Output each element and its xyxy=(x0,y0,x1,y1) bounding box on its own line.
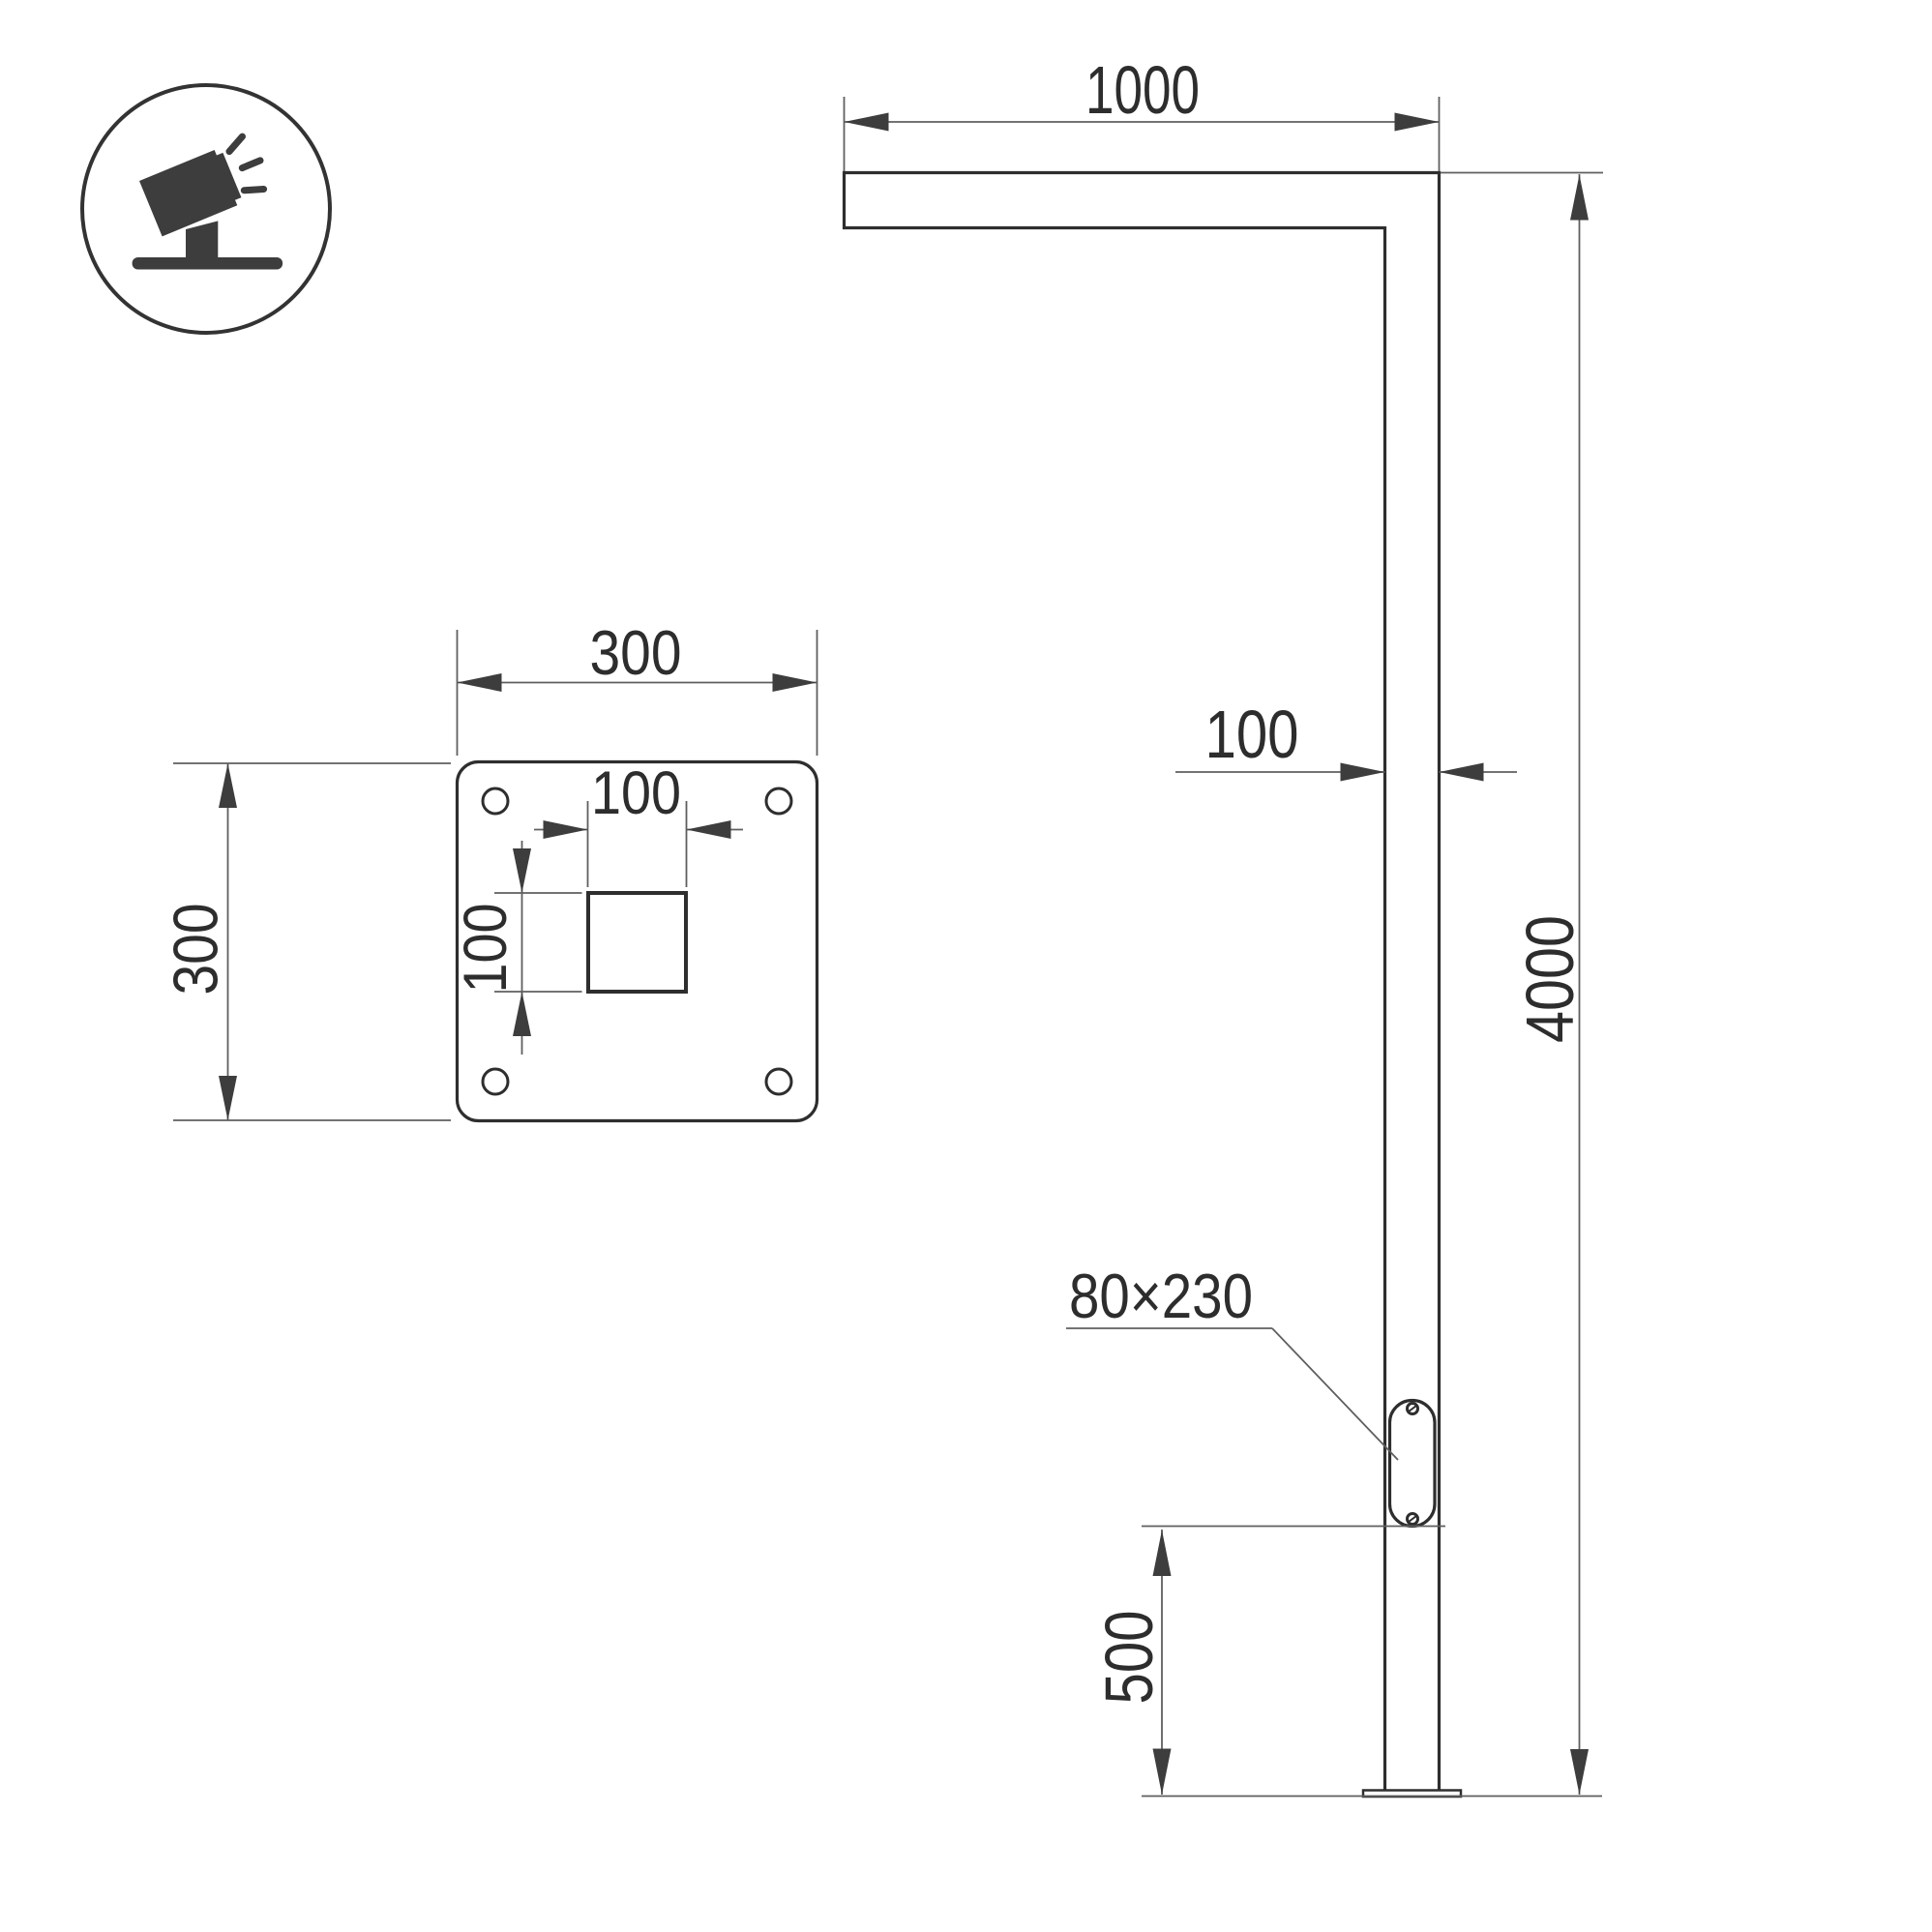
svg-text:100: 100 xyxy=(452,904,520,994)
svg-text:100: 100 xyxy=(1205,697,1299,772)
svg-text:300: 300 xyxy=(590,617,682,688)
svg-text:1000: 1000 xyxy=(1085,52,1200,128)
svg-text:500: 500 xyxy=(1091,1611,1167,1705)
svg-text:80×230: 80×230 xyxy=(1069,1261,1253,1331)
svg-text:4000: 4000 xyxy=(1512,915,1588,1043)
svg-text:300: 300 xyxy=(161,904,231,996)
svg-text:100: 100 xyxy=(591,759,681,827)
